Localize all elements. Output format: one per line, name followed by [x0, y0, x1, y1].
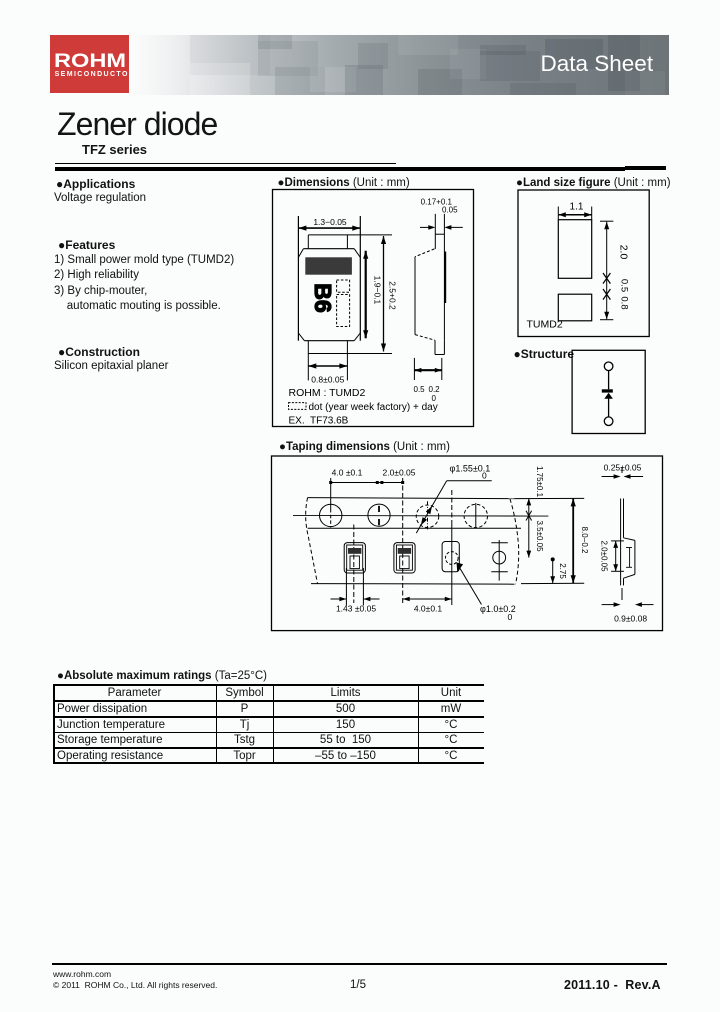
svg-text:8.0−0.2: 8.0−0.2 [580, 527, 589, 554]
svg-text:TUMD2: TUMD2 [527, 319, 563, 331]
svg-text:B6: B6 [310, 283, 336, 312]
svg-text:0.8±0.05: 0.8±0.05 [311, 375, 344, 385]
svg-text:3.5±0.05: 3.5±0.05 [535, 520, 544, 552]
svg-text:0.2: 0.2 [429, 385, 441, 394]
svg-text:0.05: 0.05 [442, 206, 458, 215]
svg-text:0.5: 0.5 [414, 385, 426, 394]
svg-text:0.25±0.05: 0.25±0.05 [604, 463, 642, 473]
svg-text:0.9±0.08: 0.9±0.08 [614, 614, 647, 624]
svg-text:1.1: 1.1 [570, 202, 584, 213]
svg-text:1.75±0.1: 1.75±0.1 [535, 466, 544, 498]
svg-text:0.5: 0.5 [619, 279, 630, 292]
svg-text:0: 0 [508, 612, 513, 622]
svg-text:1.43 ±0.05: 1.43 ±0.05 [336, 604, 376, 614]
svg-text:4.0±0.1: 4.0±0.1 [414, 604, 443, 614]
svg-text:2.0±0.05: 2.0±0.05 [382, 468, 415, 478]
svg-text:dot (year week factory) + day: dot (year week factory) + day [309, 402, 438, 413]
svg-text:0: 0 [482, 471, 487, 481]
svg-text:EX. TF73.6B: EX. TF73.6B [289, 416, 349, 427]
svg-text:4.0 ±0.1: 4.0 ±0.1 [332, 468, 363, 478]
svg-text:0.8: 0.8 [619, 296, 630, 309]
svg-text:ROHM : TUMD2: ROHM : TUMD2 [289, 387, 366, 399]
svg-text:2.75: 2.75 [558, 563, 567, 579]
svg-text:2.0: 2.0 [618, 245, 630, 260]
svg-text:1.9−0.1: 1.9−0.1 [372, 276, 382, 305]
svg-text:2.0±0.05: 2.0±0.05 [600, 540, 609, 572]
svg-text:1.3−0.05: 1.3−0.05 [313, 217, 347, 227]
svg-text:2.5+0.2: 2.5+0.2 [388, 281, 398, 310]
